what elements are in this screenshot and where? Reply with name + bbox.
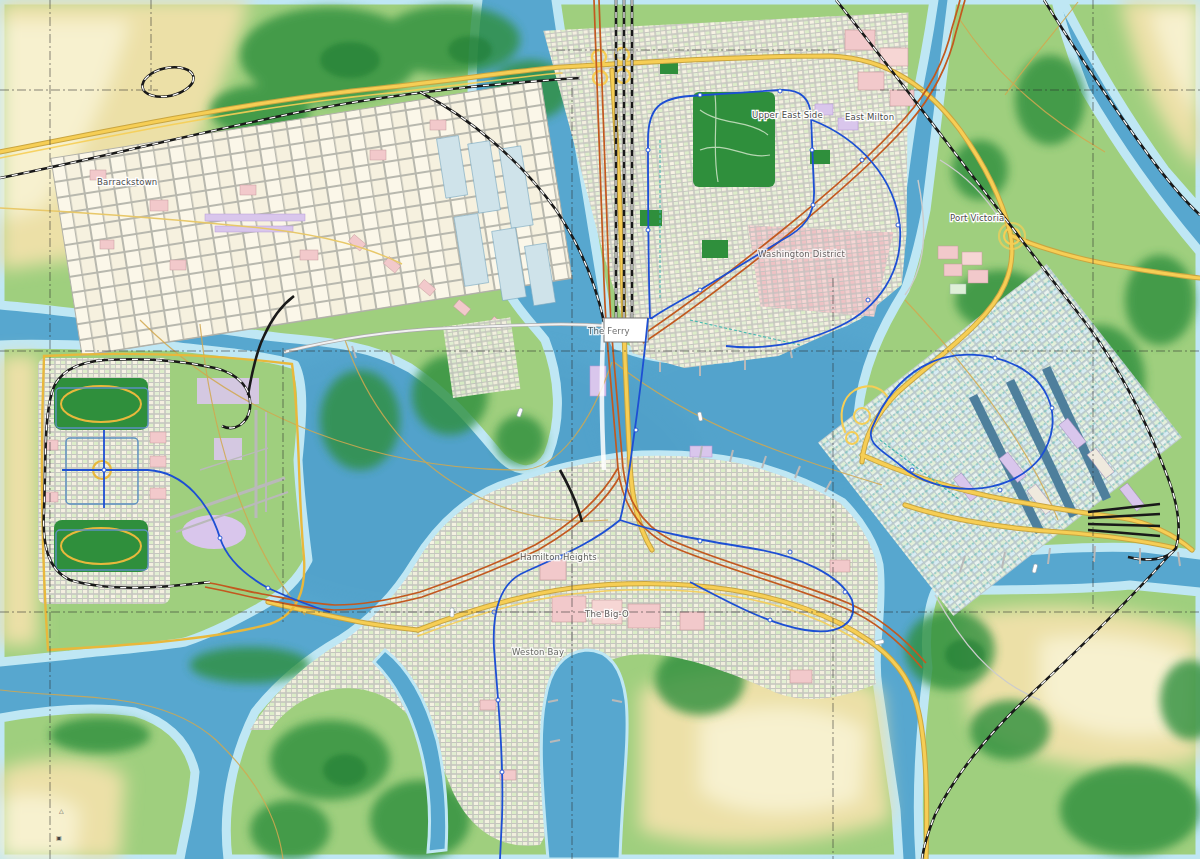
- label-washington: Washington District: [758, 249, 845, 259]
- label-port-victoria: Port Victoria: [950, 213, 1004, 223]
- label-big-o: The Big-O: [584, 609, 629, 619]
- terrain-marker-ruin: ▣: [56, 834, 62, 841]
- label-the-ferry: The Ferry: [587, 326, 630, 336]
- label-upper-east-side: Upper East Side: [752, 110, 823, 120]
- label-east-milton: East Milton: [845, 112, 894, 122]
- map-viewport[interactable]: Barrackstown Upper East Side East Milton…: [0, 0, 1200, 859]
- inlet-horseshoe: [541, 650, 627, 859]
- label-hamilton-heights: Hamilton Heights: [520, 552, 597, 562]
- city-map: Barrackstown Upper East Side East Milton…: [0, 0, 1200, 859]
- terrain-marker-peak: △: [59, 807, 64, 814]
- label-barrackstown: Barrackstown: [97, 177, 157, 187]
- label-weston-bay: Weston Bay: [512, 647, 564, 657]
